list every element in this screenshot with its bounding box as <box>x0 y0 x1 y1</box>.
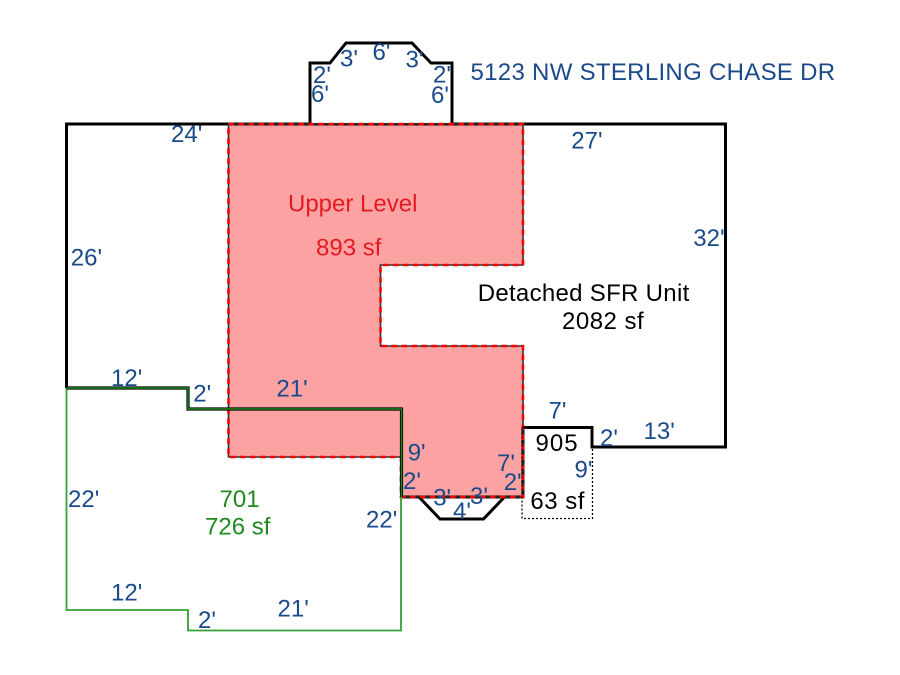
svg-text:Upper Level: Upper Level <box>288 191 417 218</box>
svg-text:6': 6' <box>373 39 391 66</box>
svg-text:21': 21' <box>278 596 309 623</box>
svg-text:22': 22' <box>366 507 397 534</box>
svg-text:24': 24' <box>171 121 202 148</box>
svg-text:2082 sf: 2082 sf <box>562 308 644 335</box>
svg-text:2': 2' <box>600 425 618 452</box>
svg-text:3': 3' <box>433 485 451 512</box>
svg-text:63 sf: 63 sf <box>530 488 585 515</box>
svg-text:9': 9' <box>408 440 426 467</box>
svg-text:893 sf: 893 sf <box>316 235 382 262</box>
svg-text:27': 27' <box>571 127 602 154</box>
svg-text:12': 12' <box>111 365 142 392</box>
svg-text:4': 4' <box>453 498 471 525</box>
svg-text:2': 2' <box>403 468 421 495</box>
svg-text:Detached SFR Unit: Detached SFR Unit <box>478 280 690 307</box>
svg-text:32': 32' <box>693 225 724 252</box>
svg-text:3': 3' <box>470 483 488 510</box>
svg-text:9': 9' <box>575 457 593 484</box>
svg-text:726 sf: 726 sf <box>205 514 271 541</box>
svg-text:3': 3' <box>340 46 358 73</box>
svg-text:5123 NW STERLING CHASE DR: 5123 NW STERLING CHASE DR <box>471 59 836 86</box>
svg-text:2': 2' <box>198 607 216 634</box>
svg-text:3': 3' <box>406 47 424 74</box>
svg-text:6': 6' <box>311 81 329 108</box>
svg-text:26': 26' <box>71 244 102 271</box>
svg-text:21': 21' <box>276 376 307 403</box>
svg-text:7': 7' <box>549 398 567 425</box>
svg-text:2': 2' <box>193 380 211 407</box>
svg-text:6': 6' <box>431 82 449 109</box>
svg-text:701: 701 <box>220 486 260 513</box>
svg-text:12': 12' <box>111 580 142 607</box>
svg-text:13': 13' <box>644 418 675 445</box>
svg-text:2': 2' <box>504 469 522 496</box>
svg-text:905: 905 <box>536 430 579 457</box>
svg-text:22': 22' <box>68 486 99 513</box>
